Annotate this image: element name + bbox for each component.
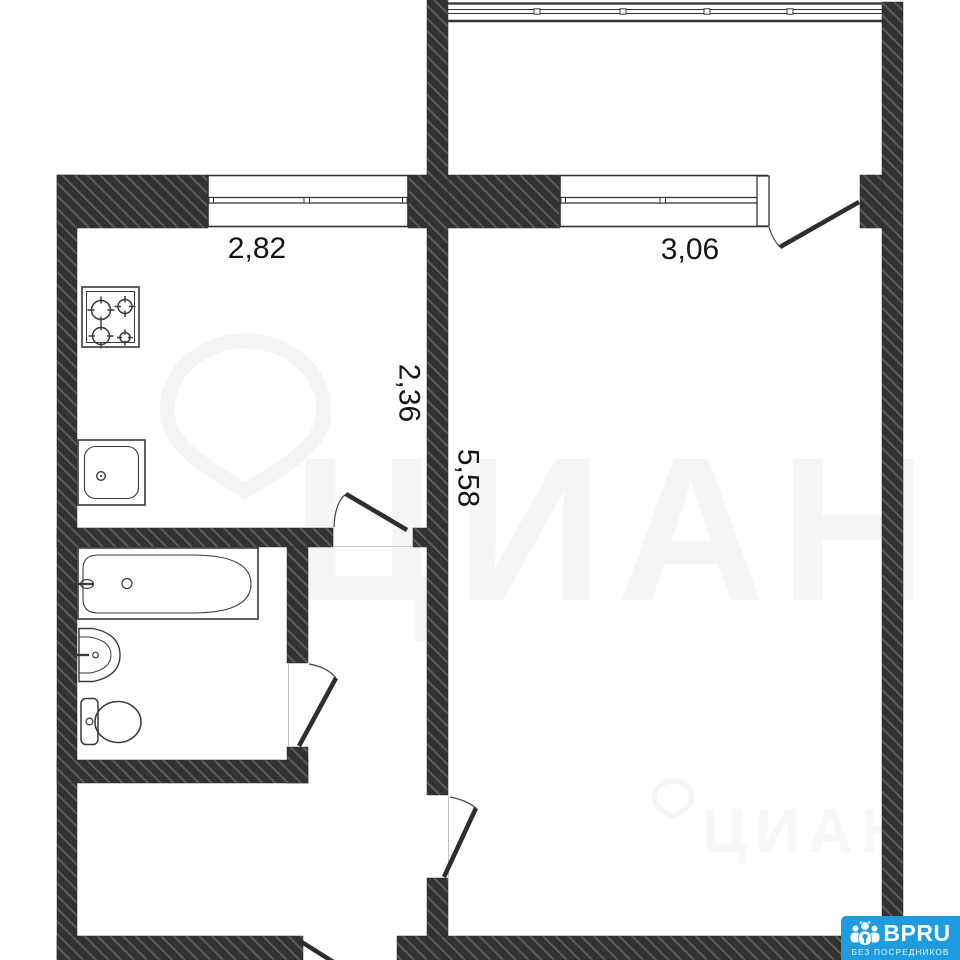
logo-tagline: БЕЗ ПОСРЕДНИКОВ: [851, 948, 949, 957]
wall-top-living: [448, 175, 560, 228]
floor-plan-svg: 2,82 3,06 2,36 5,58: [0, 0, 960, 960]
wall-kitchen-bath: [57, 528, 333, 547]
wall-right: [882, 2, 903, 960]
wall-bottom-right: [397, 936, 903, 960]
hall-living-door: [444, 796, 476, 877]
fixtures: [74, 287, 258, 745]
washbasin-icon: [75, 629, 120, 682]
wall-bath-bottom: [57, 760, 308, 783]
dimension-kitchen-depth: 2,36: [393, 364, 426, 422]
living-room-window: [560, 176, 769, 227]
stove-icon: [82, 287, 139, 349]
kitchen-door: [334, 494, 412, 547]
doors: [289, 202, 860, 960]
bpru-people-lock-icon: [850, 920, 880, 947]
entry-door: [300, 941, 335, 960]
balcony-glazing: [448, 4, 882, 22]
toilet-icon: [81, 699, 141, 745]
wall-left: [57, 175, 77, 960]
dimension-labels: 2,82 3,06 2,36 5,58: [228, 232, 719, 507]
dimension-kitchen-width: 2,82: [228, 232, 286, 265]
bpru-logo: BPRU БЕЗ ПОСРЕДНИКОВ: [841, 916, 960, 960]
bathtub-icon: [74, 548, 258, 619]
logo-name: BPRU: [883, 922, 950, 945]
dimension-living-room-depth: 5,58: [452, 449, 485, 507]
kitchen-sink-icon: [78, 440, 145, 505]
wall-central-upper: [427, 0, 448, 795]
wall-bath-right-upper: [287, 547, 308, 663]
floor-plan-image: ЦИАН ЦИАН: [0, 0, 960, 960]
wall-bottom-left: [57, 936, 303, 960]
logo-row: BPRU: [850, 920, 950, 947]
wall-kitchen-door-stub: [413, 528, 427, 547]
wall-top-kitchen-a: [57, 175, 208, 228]
dimension-living-room-width: 3,06: [661, 233, 719, 266]
kitchen-window: [208, 176, 408, 227]
bathroom-door: [289, 664, 337, 746]
balcony-door: [769, 202, 859, 247]
wall-balcony-pier: [860, 175, 882, 228]
balcony-door-jamb: [757, 176, 769, 226]
